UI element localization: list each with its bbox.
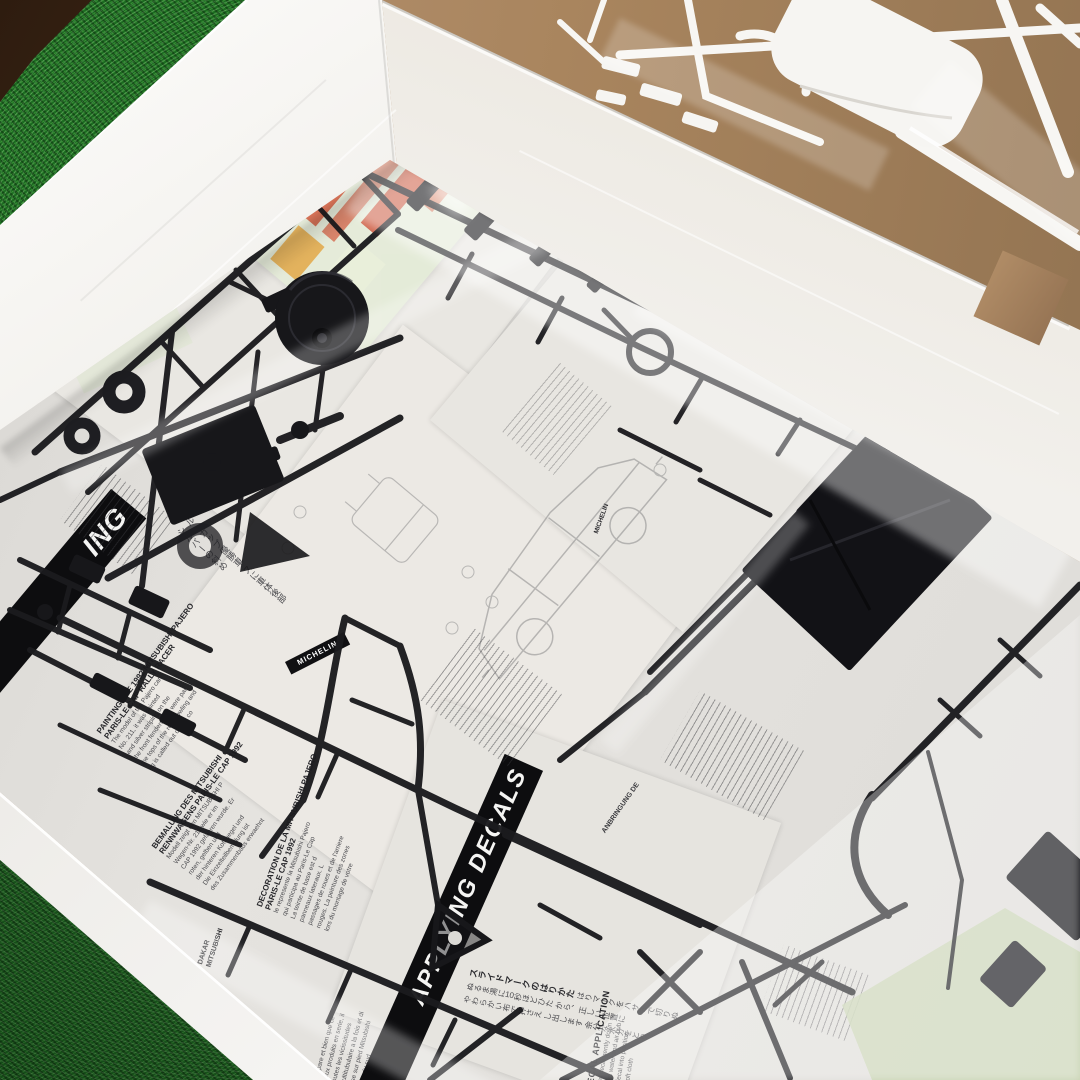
bracket-part <box>432 905 487 968</box>
photo-model-kit-box: ING ル・カップ優勝車 スに車体後部 シルバーの斜め PAINTING THE… <box>0 0 1080 1080</box>
